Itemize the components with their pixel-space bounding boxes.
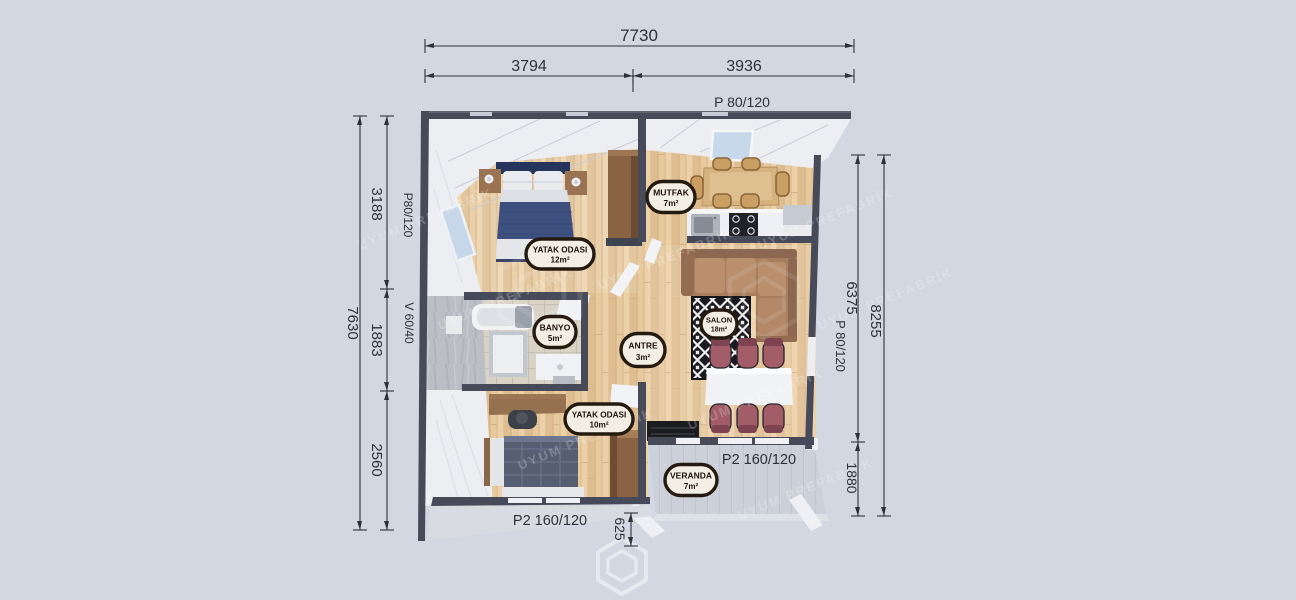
svg-text:P2 160/120: P2 160/120 bbox=[513, 513, 587, 529]
svg-text:10m²: 10m² bbox=[589, 421, 608, 430]
svg-text:ANTRE: ANTRE bbox=[628, 341, 658, 351]
svg-text:YATAK ODASI: YATAK ODASI bbox=[533, 246, 587, 255]
svg-text:7730: 7730 bbox=[620, 26, 658, 45]
svg-text:1883: 1883 bbox=[368, 323, 385, 356]
svg-text:P2 160/120: P2 160/120 bbox=[722, 452, 796, 468]
svg-text:7m²: 7m² bbox=[684, 482, 699, 491]
svg-text:5m²: 5m² bbox=[548, 334, 563, 343]
svg-text:12m²: 12m² bbox=[550, 256, 569, 265]
svg-text:1880: 1880 bbox=[844, 462, 860, 493]
svg-text:P80/120: P80/120 bbox=[401, 193, 415, 238]
svg-text:3936: 3936 bbox=[726, 58, 762, 75]
svg-text:VERANDA: VERANDA bbox=[670, 471, 712, 481]
svg-text:BANYO: BANYO bbox=[540, 323, 571, 333]
svg-text:6375: 6375 bbox=[843, 281, 860, 314]
svg-text:3794: 3794 bbox=[511, 58, 547, 75]
svg-text:3188: 3188 bbox=[368, 187, 385, 220]
svg-text:18m²: 18m² bbox=[711, 327, 728, 334]
svg-text:625: 625 bbox=[612, 517, 628, 541]
svg-text:P 80/120: P 80/120 bbox=[714, 94, 770, 110]
svg-text:P 80/120: P 80/120 bbox=[833, 320, 848, 372]
svg-text:SALON: SALON bbox=[706, 316, 732, 325]
svg-text:MUTFAK: MUTFAK bbox=[653, 188, 690, 198]
svg-text:7m²: 7m² bbox=[664, 198, 679, 208]
svg-text:7630: 7630 bbox=[344, 306, 361, 339]
svg-text:8255: 8255 bbox=[867, 304, 884, 337]
svg-text:YATAK ODASI: YATAK ODASI bbox=[572, 411, 626, 420]
svg-text:2560: 2560 bbox=[368, 443, 385, 476]
svg-text:3m²: 3m² bbox=[636, 353, 651, 362]
svg-text:V 60/40: V 60/40 bbox=[402, 302, 416, 344]
